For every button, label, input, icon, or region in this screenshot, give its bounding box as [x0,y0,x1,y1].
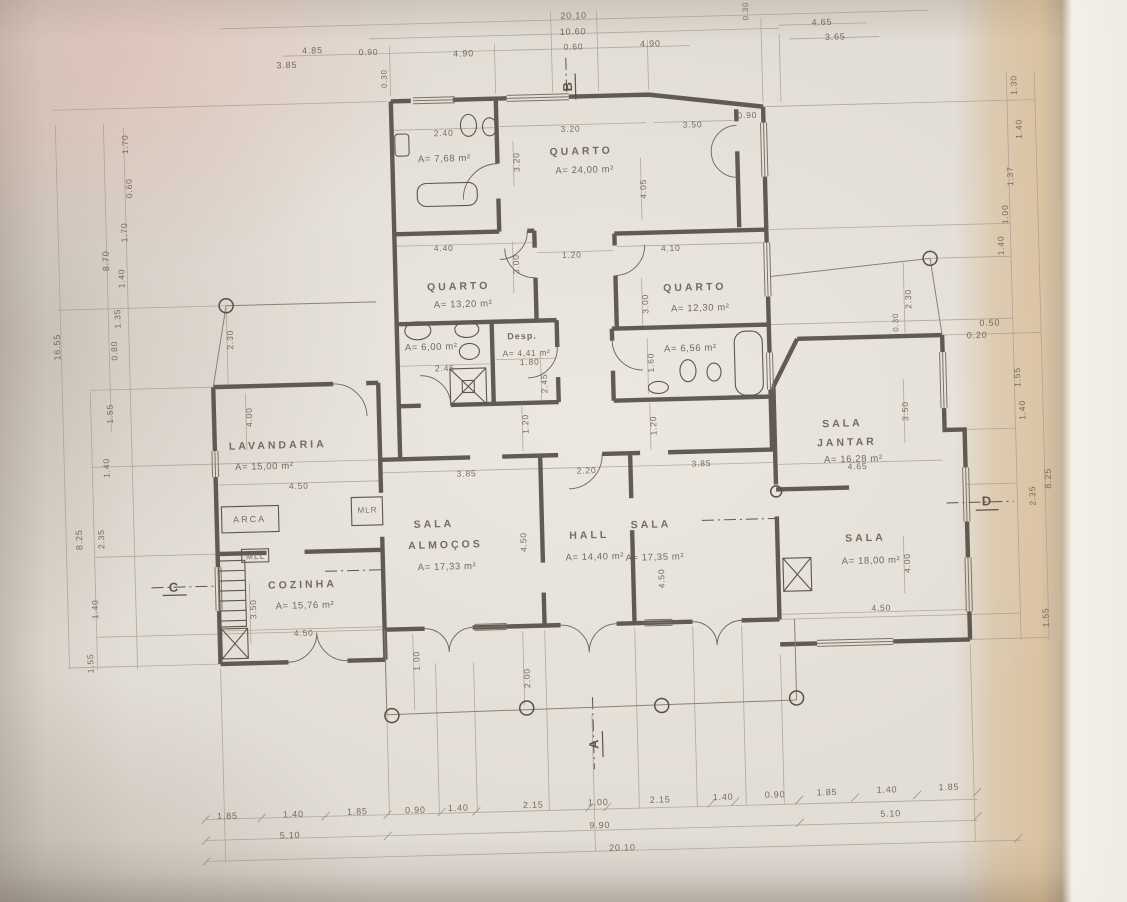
dim-int: 4.50 [656,568,667,588]
bathtub-icon [417,182,478,207]
dim-int: 1.20 [562,249,582,260]
dim-bottom: 1.40 [283,809,304,820]
room-area-wc-3: A= 6,56 m² [664,342,717,354]
room-label-hall: HALL [569,529,609,542]
room-label-quarto-3: QUARTO [663,281,727,295]
dim-bottom: 5.10 [280,830,301,841]
section-marker-c: C [169,580,179,595]
dim-right: 1.55 [1040,607,1051,627]
dim-bottom: 0.90 [405,805,426,816]
dim-int: 2.20 [577,465,597,476]
bathtub-icon [734,331,764,396]
dim-bottom: 1.40 [448,803,469,814]
room-label-cozinha: COZINHA [268,578,337,592]
floor-plan: QUARTOA= 24,00 m²A= 7,68 m²QUARTOA= 13,2… [0,0,1127,902]
dim-top: 0.60 [563,41,583,52]
room-area-cozinha: A= 15,76 m² [276,600,335,613]
room-label-despensa: Desp. [507,331,537,342]
blueprint-photo: QUARTOA= 24,00 m²A= 7,68 m²QUARTOA= 13,2… [0,0,1127,902]
dim-right: 1.30 [1008,75,1019,95]
dim-right: 1.37 [1005,166,1016,186]
dim-top: 0.90 [359,47,379,58]
hatch-box-icon [222,628,249,659]
dim-top: 10.60 [560,26,587,37]
dim-left: 1.40 [90,599,101,619]
dim-top: 4.65 [811,17,832,28]
dim-right: 0.50 [979,318,1000,329]
dim-right: 1.40 [1017,400,1028,420]
fireplace-icon [783,558,812,592]
dim-left: 8.25 [74,529,85,550]
dim-int: 4.65 [848,461,868,472]
dim-top: 4.90 [453,48,474,59]
dim-int: 3.50 [248,599,259,619]
dim-int: 4.50 [289,481,309,492]
dim-int: 2.30 [225,330,236,350]
stairs-icon [219,570,246,621]
dim-int: 2.45 [539,373,550,393]
dim-bottom: 1.85 [938,782,959,793]
dim-left: 1.40 [101,458,112,478]
dim-bottom: 0.90 [765,789,786,800]
dim-int: 4.50 [871,602,891,613]
room-label-sala-almocos: SALA [413,518,454,531]
dim-bottom: 1.85 [347,806,368,817]
dim-int: 4.00 [244,407,255,427]
room-label-quarto-2: QUARTO [427,280,491,294]
dim-left: 2.35 [96,529,107,549]
section-marker-d: D [982,493,992,508]
dim-left: 1.55 [105,404,116,424]
dim-int: 1.80 [520,357,540,368]
dim-int: 2.45 [435,363,455,374]
dim-right: 1.55 [1012,367,1023,387]
dim-bottom: 2.15 [650,794,671,805]
dim-int: 4.40 [434,243,454,254]
dim-left-total: 16.55 [52,334,63,361]
room-label-sala-2: SALA [845,532,886,545]
room-area-hall: A= 14,40 m² [565,551,624,564]
dim-int: 3.85 [457,468,477,479]
room-label-sala: SALA [631,518,672,531]
dim-bottom: 1.00 [588,797,609,808]
shower-icon [450,368,487,405]
dim-int: 3.50 [900,401,911,421]
bidet-icon [459,343,479,360]
dim-left: 0.80 [109,341,120,361]
dim-right: 1.40 [996,235,1007,255]
dim-bottom: 5.10 [880,808,901,819]
dim-right: 0.30 [891,313,900,332]
dim-int: 4.10 [661,243,681,254]
dim-bottom: 2.15 [523,800,544,811]
dim-bottom: 9.90 [589,820,610,831]
dim-top: 3.65 [825,31,846,42]
dim-int: 4.50 [518,532,529,552]
dim-top: 0.30 [741,2,750,21]
dim-int: 3.50 [683,119,703,130]
dim-top: 4.90 [640,38,661,49]
fixtures [207,106,813,659]
dim-top: 4.85 [302,45,323,56]
section-marker-b: B [560,82,575,92]
equip-mlr: MLR [357,505,377,515]
dim-bottom: 1.40 [877,784,898,795]
room-area-sala-almocos: A= 17,33 m² [418,561,477,574]
section-marker-a: A [586,739,601,749]
dim-left: 1.70 [120,134,131,154]
room-label-sala-jantar: SALA [822,417,863,430]
dim-int: 3.20 [511,152,522,172]
dim-int: 1.20 [520,414,531,434]
bidet-icon [707,363,721,381]
dim-right: 0.20 [967,330,988,341]
dimension-lines [51,0,1055,869]
dim-right: 8.25 [1043,468,1054,489]
dim-left: 1.35 [112,309,123,329]
sink-icon [648,381,668,394]
room-label-sala-almocos: ALMOÇOS [408,538,483,552]
room-label-sala-jantar: JANTAR [817,436,877,450]
dim-int: 4.00 [902,553,913,573]
room-label-lavandaria: LAVANDARIA [229,438,327,453]
room-area-sala: A= 17,35 m² [625,551,684,564]
dim-left: 1.40 [116,268,127,288]
sink-icon [395,134,410,156]
equip-arca: ARCA [233,514,266,525]
dim-right: 1.40 [1013,119,1024,139]
dim-int: 3.00 [511,254,522,274]
room-area-lavandaria: A= 15,00 m² [235,461,294,474]
dim-int: 3.20 [561,123,581,134]
dim-int: 3.00 [640,294,651,314]
room-area-wc-principal: A= 7,68 m² [418,153,471,165]
room-area-quarto-principal: A= 24,00 m² [555,164,614,177]
dim-left: 0.60 [124,178,135,198]
dim-bottom: 1.85 [217,811,238,822]
equip-mll: MLL [246,551,266,562]
dim-right: 2.35 [1027,486,1038,506]
dim-top: 3.85 [276,60,297,71]
toilet-icon [460,114,477,136]
dim-int: 2.00 [522,668,533,688]
room-label-quarto-principal: QUARTO [549,145,613,159]
dim-top: 0.30 [379,69,388,88]
dim-left: 8.70 [101,250,112,271]
dim-bottom-total: 20.10 [609,842,636,853]
room-area-quarto-2: A= 13,20 m² [434,298,493,311]
room-area-quarto-3: A= 12,30 m² [671,302,730,315]
dim-right: 2.30 [903,289,914,309]
dim-left: 1.70 [119,222,130,242]
dim-int: 1.60 [645,353,656,373]
floor-plan-drawing [0,0,1127,902]
door-arcs [275,125,751,662]
dim-bottom: 1.40 [713,792,734,803]
room-area-wc-2: A= 6,00 m² [405,341,458,353]
dim-int: 4.50 [294,628,314,639]
dim-bottom: 1.85 [817,787,838,798]
dim-int: 1.20 [648,416,659,436]
dim-left: 1.55 [85,653,96,673]
dim-int: 2.40 [434,128,454,139]
dim-top-total: 20.10 [560,10,587,21]
dim-int: 4.05 [638,179,649,199]
room-area-sala-2: A= 18,00 m² [842,555,901,568]
dim-int: 3.85 [691,458,711,469]
dim-int: 1.00 [411,651,422,671]
toilet-icon [680,359,697,381]
dim-int: 0.90 [737,110,757,121]
dim-right: 1.00 [1000,204,1011,224]
